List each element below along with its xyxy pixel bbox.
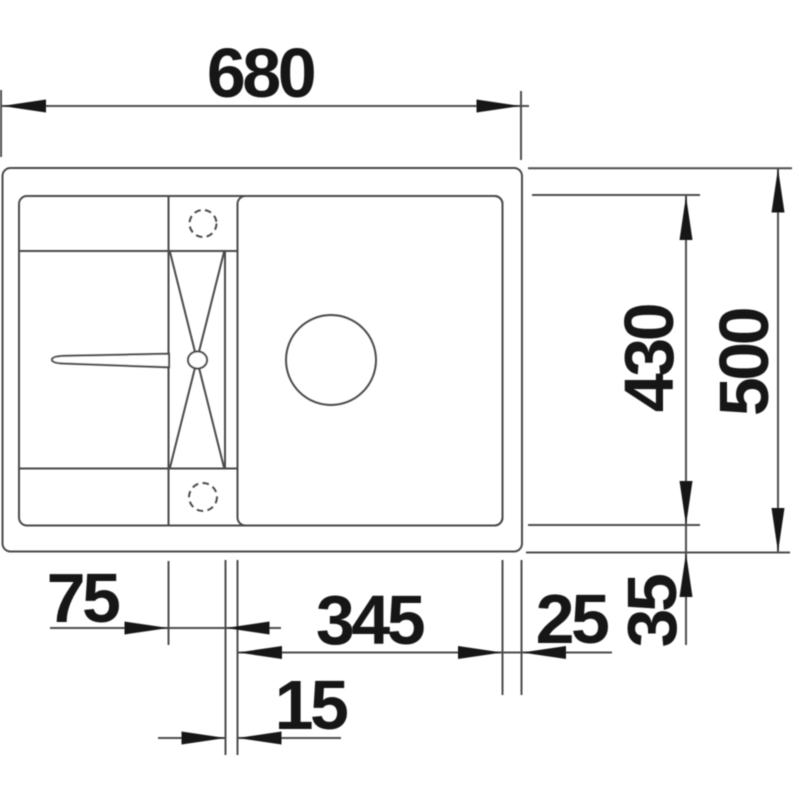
svg-text:75: 75 [47, 559, 119, 637]
svg-text:680: 680 [207, 34, 315, 112]
svg-text:500: 500 [705, 308, 783, 416]
svg-text:430: 430 [610, 304, 688, 412]
svg-text:25: 25 [536, 580, 608, 658]
svg-text:345: 345 [316, 581, 424, 659]
svg-text:15: 15 [275, 666, 347, 744]
svg-text:35: 35 [613, 575, 691, 647]
